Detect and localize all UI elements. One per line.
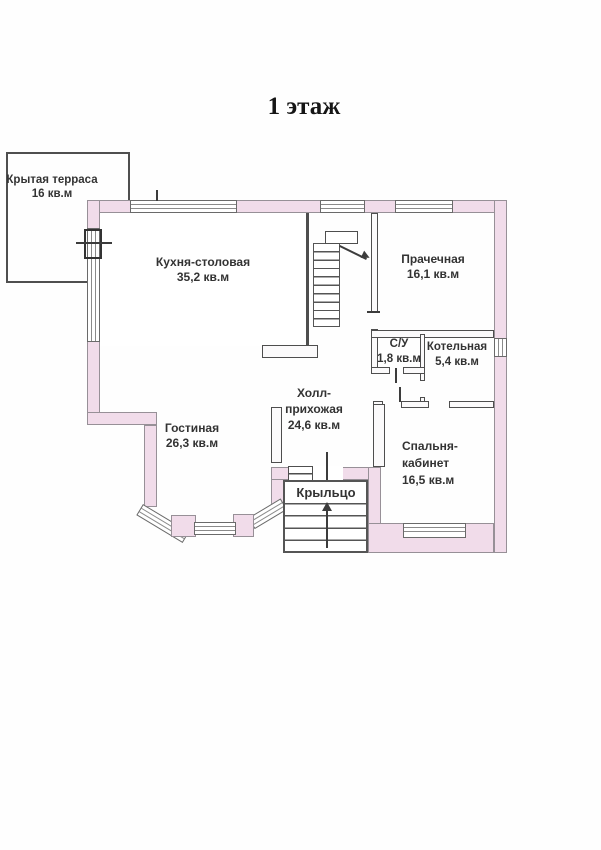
bay-window-bottom	[194, 522, 236, 535]
wall-right	[494, 200, 507, 553]
entrance-door-leaf	[326, 452, 328, 481]
laundry-door-tick	[367, 311, 380, 313]
room-label-porch: Крыльцо	[296, 485, 355, 500]
window-kitchen-top	[130, 200, 237, 213]
stairs-treads	[313, 243, 340, 327]
page-title: 1 этаж	[268, 93, 341, 121]
window-laundry-top	[395, 200, 453, 213]
wall-bedroom-left-inner	[373, 404, 385, 467]
window-stairwell-top	[320, 200, 365, 213]
bedroom-door-leaf	[399, 387, 401, 402]
room-label-boiler: Котельная 5,4 кв.м	[427, 340, 487, 370]
room-label-bedroom: Спальня- кабинет 16,5 кв.м	[402, 438, 458, 489]
room-label-hall: Холл- прихожая 24,6 кв.м	[285, 385, 343, 433]
terrace-door-tick	[76, 242, 112, 244]
room-label-terrace: Крытая терраса 16 кв.м	[6, 173, 97, 201]
wall-left-lower	[144, 425, 157, 507]
bay-corner-right	[233, 514, 254, 537]
porch-arrow-line	[326, 510, 328, 548]
wall-left-step	[87, 412, 157, 425]
room-label-bathroom: С/У 1,8 кв.м	[377, 337, 421, 367]
wall-kitchen-bottom	[262, 345, 318, 358]
window-divider-tick	[156, 190, 158, 201]
bathroom-door-leaf	[395, 368, 397, 383]
wall-kitchen-stairs	[306, 213, 309, 358]
bay-corner-left	[171, 515, 196, 537]
wall-stairs-laundry-upper	[371, 213, 378, 312]
window-bedroom-bottom	[403, 523, 466, 538]
stairs-landing	[325, 231, 358, 244]
up-arrow-icon	[322, 502, 332, 511]
wall-bathroom-bottom-left	[371, 367, 390, 374]
wall-bedroom-top-b	[401, 401, 429, 408]
terrace-door	[84, 229, 102, 259]
wall-bathroom-bottom-right	[403, 367, 425, 374]
stairs-direction-arrow-icon	[361, 251, 372, 262]
wall-hall-living-stub	[271, 407, 282, 463]
window-boiler-right	[494, 338, 507, 357]
room-label-laundry: Прачечная 16,1 кв.м	[401, 252, 465, 282]
floor-plan-page: 1 этаж	[0, 0, 601, 850]
room-label-living: Гостиная 26,3 кв.м	[165, 421, 219, 451]
wall-bedroom-top-c	[449, 401, 494, 408]
entrance-threshold-steps	[288, 466, 313, 481]
entrance-door-opening	[313, 466, 343, 481]
room-label-kitchen: Кухня-столовая 35,2 кв.м	[156, 255, 250, 285]
